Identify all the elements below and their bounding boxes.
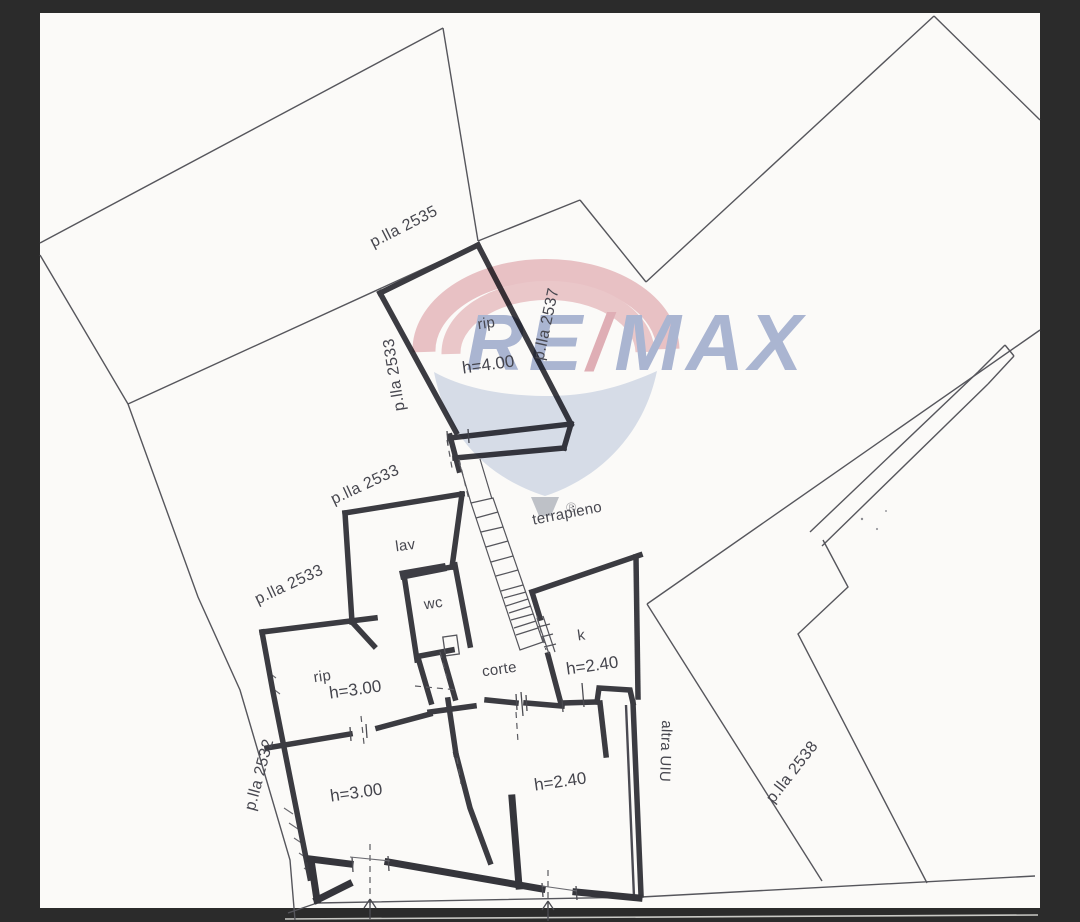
room-label-rip-top: rip [476,314,496,333]
room-label-lav: lav [394,536,416,556]
room-label-wc: wc [422,594,444,614]
room-label-altra-uiu: altra UIU [656,720,675,782]
floorplan-canvas: RE/MAX ® p.lla 2535 p.lla 2533 p.lla 253… [0,0,1080,922]
screenshot-root: { "document_kind": "cadastral floor plan… [0,0,1080,922]
remax-wordmark: RE/MAX [466,298,807,387]
